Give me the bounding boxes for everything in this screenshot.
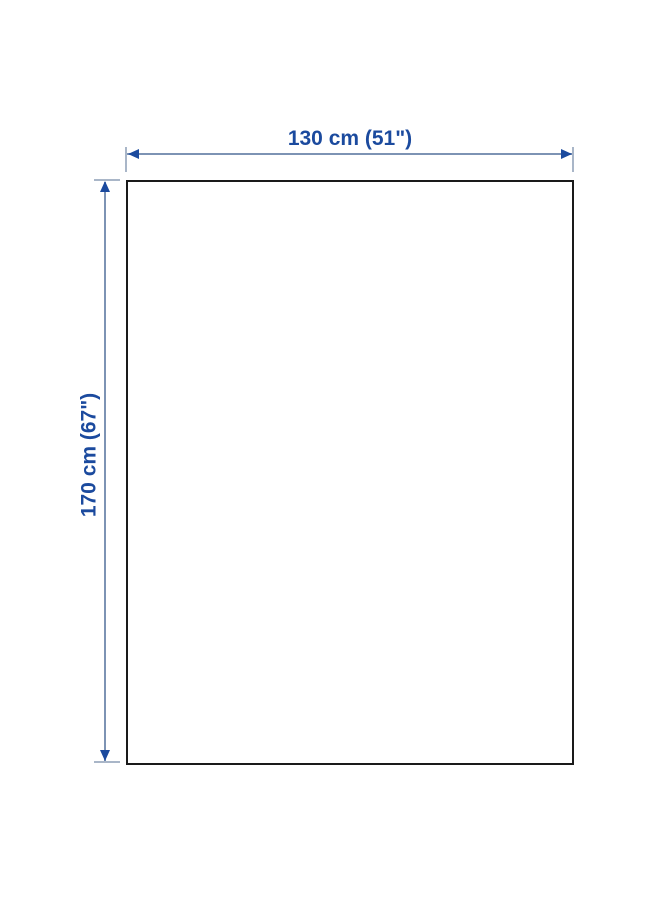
dimension-diagram: 130 cm (51") 170 cm (67"): [0, 0, 660, 900]
width-end-tick-left: [125, 147, 127, 172]
product-outline: [126, 180, 574, 765]
arrow-down-icon: [100, 750, 110, 761]
height-dimension-line: [104, 182, 106, 761]
width-end-tick-right: [572, 147, 574, 172]
width-dimension-label: 130 cm (51"): [288, 128, 412, 149]
width-dimension-line: [127, 153, 573, 155]
height-dimension-label: 170 cm (67"): [79, 393, 100, 517]
height-end-tick-bottom: [94, 761, 120, 763]
arrow-left-icon: [128, 149, 139, 159]
arrow-right-icon: [561, 149, 572, 159]
arrow-up-icon: [100, 181, 110, 192]
